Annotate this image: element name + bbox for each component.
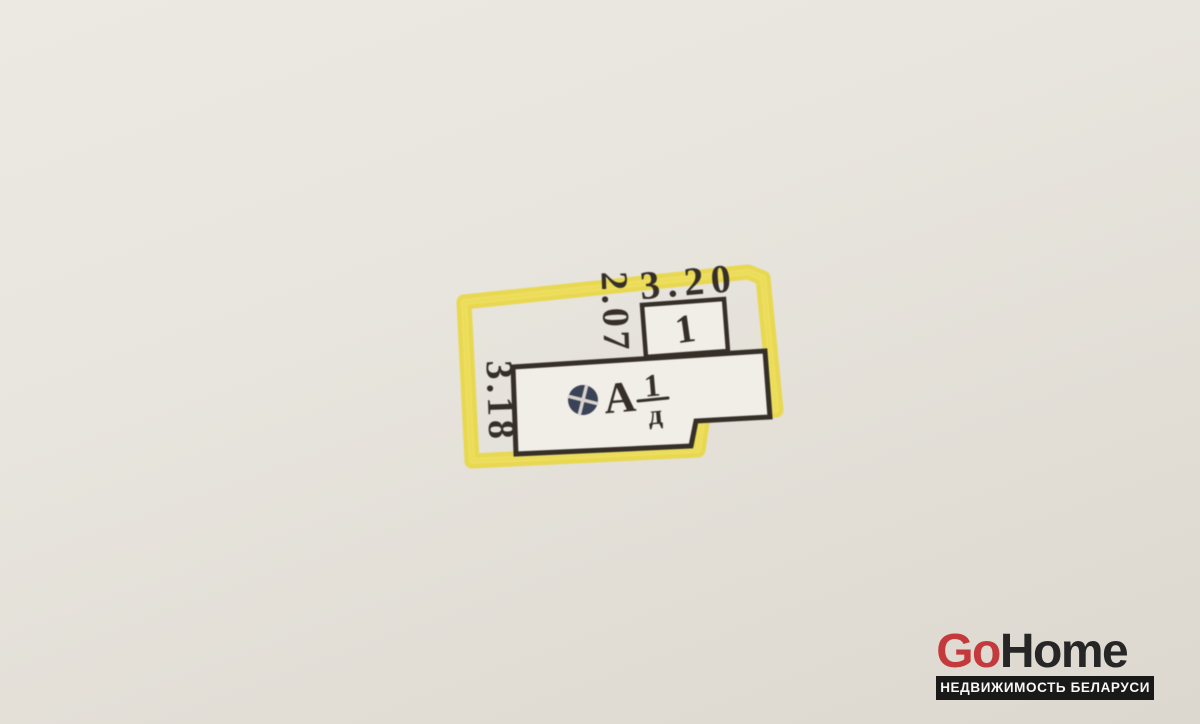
floor-plan-drawing: 3.20 2.07 3.18 1 А 1 д xyxy=(0,0,1200,724)
building-fraction-denominator: д xyxy=(647,399,664,431)
gohome-watermark: GoHome НЕДВИЖИМОСТЬ БЕЛАРУСИ xyxy=(936,630,1154,700)
dimension-left-vertical: 3.18 xyxy=(478,360,523,444)
gohome-logo: GoHome xyxy=(936,630,1154,673)
photo-of-floor-plan: 3.20 2.07 3.18 1 А 1 д GoHome НЕДВИЖИМОС… xyxy=(0,0,1200,724)
building-outline xyxy=(513,351,770,454)
gohome-tagline-banner: НЕДВИЖИМОСТЬ БЕЛАРУСИ xyxy=(936,676,1154,700)
logo-home-text: Home xyxy=(1000,625,1127,678)
building-letter: А xyxy=(602,372,638,424)
logo-go-text: Go xyxy=(936,625,1000,678)
dimension-top: 3.20 xyxy=(638,255,740,308)
dimension-inner-vertical: 2.07 xyxy=(593,271,638,355)
